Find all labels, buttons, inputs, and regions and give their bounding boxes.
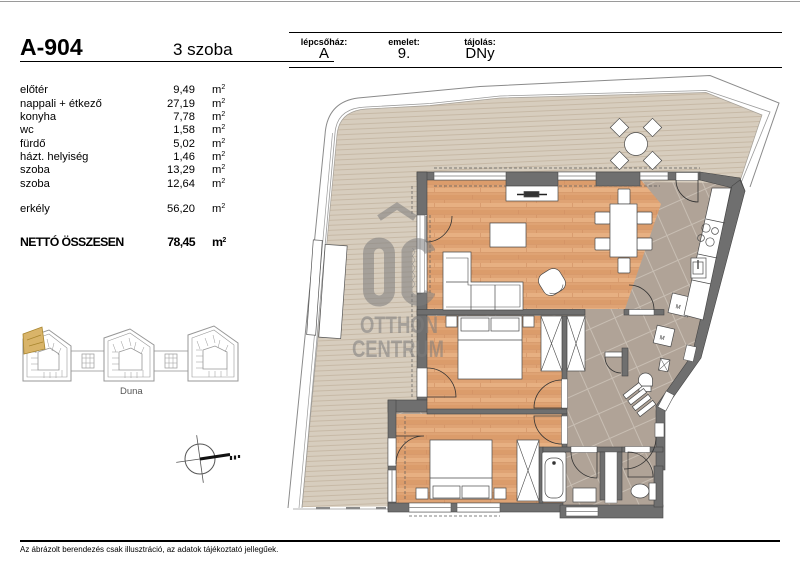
svg-text:OTTHON: OTTHON <box>360 312 438 339</box>
svg-text:CENTRUM: CENTRUM <box>352 336 444 363</box>
svg-text:Duna: Duna <box>120 386 143 397</box>
